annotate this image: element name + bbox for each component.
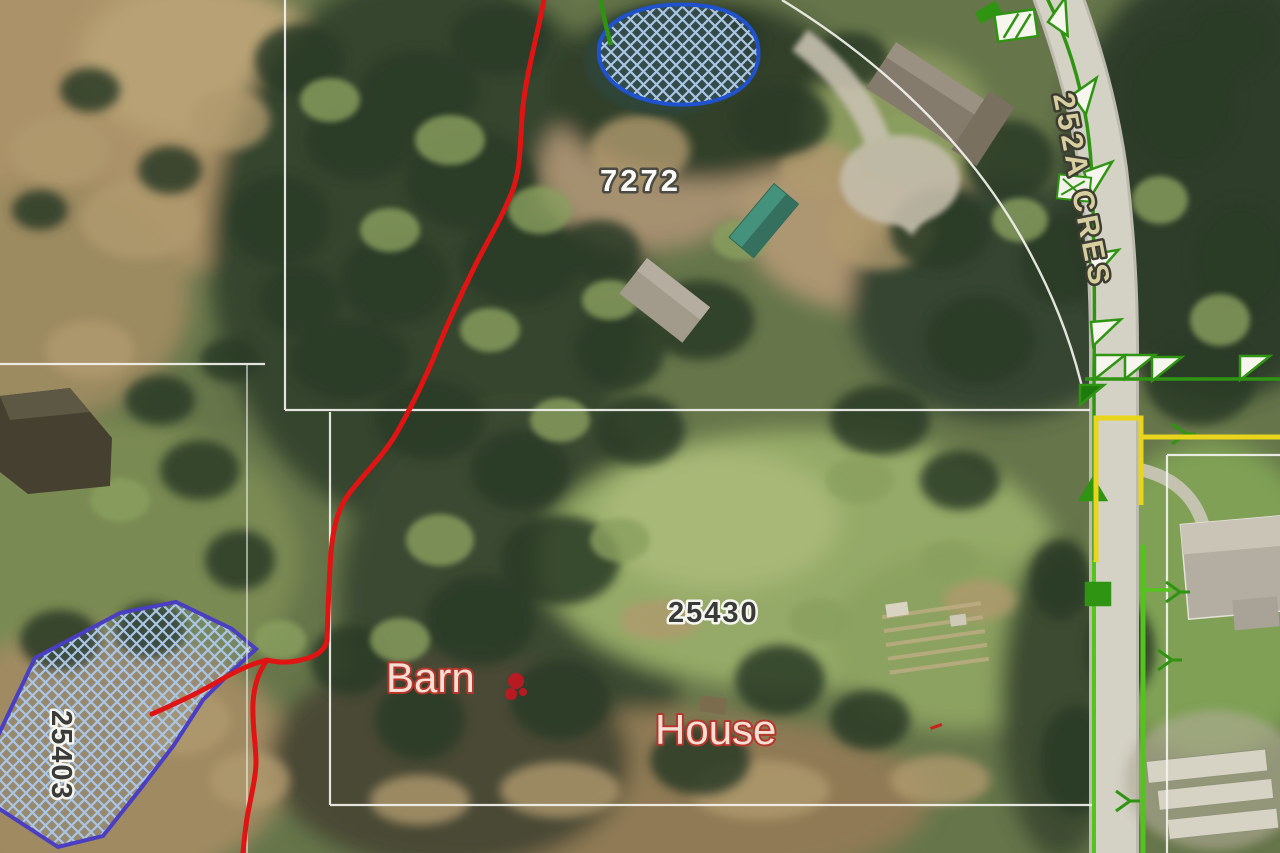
house-label: House <box>655 706 776 753</box>
aerial-map-canvas[interactable]: 7272 25430 25403 252A CRES Barn House <box>0 0 1280 853</box>
aerial-map-image: 7272 25430 25403 252A CRES Barn House <box>0 0 1280 853</box>
parcel-label-25430: 25430 <box>668 597 759 629</box>
parcel-label-7272: 7272 <box>600 163 681 198</box>
parcel-label-25403: 25403 <box>45 710 77 801</box>
barn-label: Barn <box>386 654 475 701</box>
wetland-pond-outline <box>599 5 759 105</box>
